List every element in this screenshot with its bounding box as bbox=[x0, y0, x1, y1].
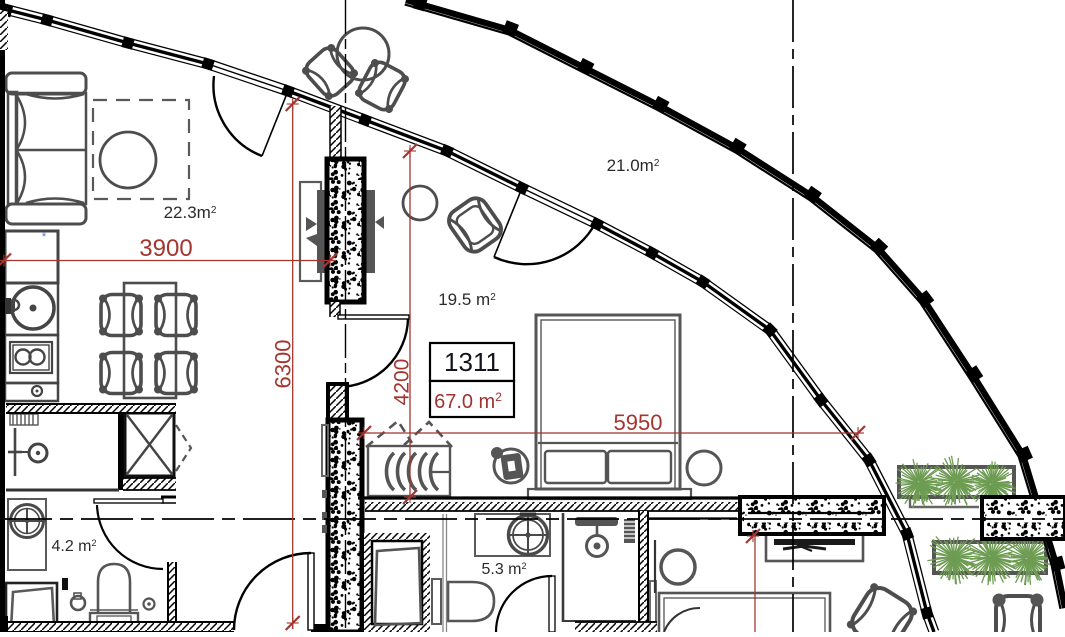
svg-text:19.5 m2: 19.5 m2 bbox=[438, 290, 496, 309]
svg-text:3900: 3900 bbox=[139, 235, 192, 262]
svg-text:4200: 4200 bbox=[391, 359, 414, 406]
svg-text:21.0m2: 21.0m2 bbox=[607, 156, 660, 175]
svg-text:*: * bbox=[42, 231, 47, 243]
svg-text:1311: 1311 bbox=[444, 347, 500, 377]
svg-text:5950: 5950 bbox=[614, 410, 663, 435]
svg-text:6300: 6300 bbox=[271, 340, 296, 389]
svg-text:67.0 m2: 67.0 m2 bbox=[434, 390, 502, 413]
svg-text:5.3 m2: 5.3 m2 bbox=[481, 561, 526, 578]
svg-text:22.3m2: 22.3m2 bbox=[164, 203, 217, 222]
svg-text:4.2 m2: 4.2 m2 bbox=[51, 538, 96, 555]
